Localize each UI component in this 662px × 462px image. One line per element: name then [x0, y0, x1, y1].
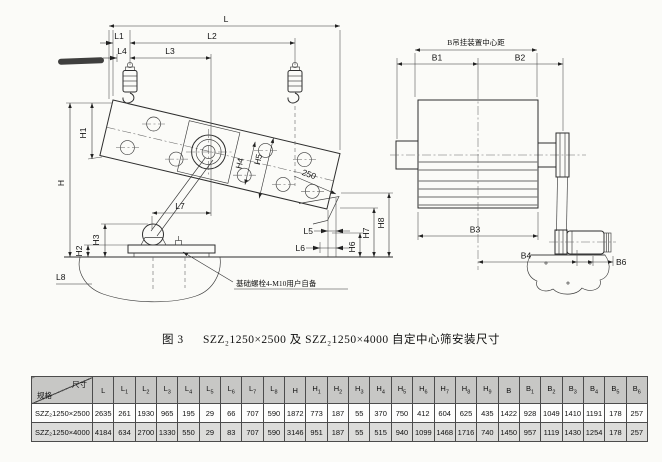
value-cell: 604 [434, 404, 455, 423]
value-cell: 1430 [562, 423, 583, 442]
dim-label-H1: H1 [78, 127, 88, 138]
v-belt [557, 177, 558, 231]
value-cell: 1716 [455, 423, 476, 442]
value-cell: 928 [519, 404, 540, 423]
base-plate [128, 245, 215, 253]
dim-label-L4: L4 [117, 46, 127, 56]
dim-label-L1: L1 [114, 31, 124, 41]
column-header-H2: H2 [327, 377, 348, 404]
column-header-L7: L7 [242, 377, 263, 404]
dim-label-B1: B1 [432, 53, 443, 63]
column-header-L1: L1 [114, 377, 135, 404]
dim-label-H: H [56, 180, 66, 186]
value-cell: 187 [327, 404, 348, 423]
value-cell: 1191 [583, 404, 604, 423]
value-cell: 940 [391, 423, 412, 442]
value-cell: 83 [221, 423, 242, 442]
column-header-H5: H5 [391, 377, 412, 404]
plan-view-dimensions [397, 50, 613, 266]
value-cell: 178 [605, 423, 626, 442]
value-cell: 773 [306, 404, 327, 423]
column-header-H3: H3 [349, 377, 370, 404]
column-header-H6: H6 [413, 377, 434, 404]
column-header-L6: L6 [221, 377, 242, 404]
column-header-B6: B6 [626, 377, 647, 404]
support-roller [143, 224, 164, 245]
value-cell: 550 [178, 423, 199, 442]
center-distance-label: B吊挂装置中心距 [447, 37, 505, 47]
value-cell: 1119 [541, 423, 562, 442]
column-header-H7: H7 [434, 377, 455, 404]
table-head: 尺寸规格LL1L2L3L4L5L6L7L8HH1H2H3H4H5H6H7H8H9… [32, 377, 648, 404]
dim-label-L: L [224, 14, 229, 24]
figure-caption: 图 3 SZZ₂1250×2500 及 SZZ₂1250×4000 自定中心筛安… [0, 331, 662, 347]
value-cell: 4184 [93, 423, 114, 442]
value-cell: 2635 [93, 404, 114, 423]
figure-title: SZZ₂1250×2500 及 SZZ₂1250×4000 自定中心筛安装尺寸 [203, 334, 500, 346]
value-cell: 435 [477, 404, 498, 423]
value-cell: 590 [263, 404, 284, 423]
column-header-B5: B5 [605, 377, 626, 404]
dim-label-L7: L7 [175, 201, 185, 211]
plan-view-labels: B吊挂装置中心距 B1 B2 B3 B4 B6 [432, 37, 627, 267]
plan-view: B吊挂装置中心距 B1 B2 B3 B4 B6 [390, 37, 627, 294]
column-header-L3: L3 [157, 377, 178, 404]
spring-hanger-icon [288, 62, 302, 103]
value-cell: 257 [626, 423, 647, 442]
value-cell: 625 [455, 404, 476, 423]
value-cell: 1254 [583, 423, 604, 442]
value-cell: 1049 [541, 404, 562, 423]
column-header-H: H [285, 377, 306, 404]
value-cell: 951 [306, 423, 327, 442]
value-cell: 178 [605, 404, 626, 423]
value-cell: 412 [413, 404, 434, 423]
value-cell: 257 [626, 404, 647, 423]
scanned-drawing-page: L L1 L2 L4 L3 H H1 H3 H2 L7 L8 250 H4 H5… [0, 0, 662, 462]
dim-label-H3: H3 [91, 234, 101, 245]
motor-body [567, 231, 604, 254]
value-cell: 707 [242, 423, 263, 442]
column-header-B1: B1 [519, 377, 540, 404]
foundation-bolt-note: 基础螺栓4-M10用户自备 [236, 278, 317, 288]
table-row: SZZ₂1250×4000418463427001330550298370759… [32, 423, 648, 442]
side-view: L L1 L2 L4 L3 H H1 H3 H2 L7 L8 250 H4 H5… [56, 14, 393, 302]
column-header-H8: H8 [455, 377, 476, 404]
dim-label-L2: L2 [207, 31, 217, 41]
column-header-B4: B4 [583, 377, 604, 404]
value-cell: 370 [370, 404, 391, 423]
value-cell: 66 [221, 404, 242, 423]
dim-label-H7: H7 [361, 227, 371, 238]
column-header-B2: B2 [541, 377, 562, 404]
dim-label-L8: L8 [56, 272, 66, 282]
column-header-L: L [93, 377, 114, 404]
motor-fins [604, 233, 611, 252]
dim-label-B2: B2 [515, 53, 526, 63]
value-cell: 187 [327, 423, 348, 442]
value-cell: 261 [114, 404, 135, 423]
value-cell: 965 [157, 404, 178, 423]
anchor-bolt [176, 241, 182, 246]
column-header-L8: L8 [263, 377, 284, 404]
value-cell: 1930 [135, 404, 156, 423]
table-row: SZZ₂1250×2500263526119309651952966707590… [32, 404, 648, 423]
value-cell: 195 [178, 404, 199, 423]
value-cell: 3146 [285, 423, 306, 442]
value-cell: 29 [199, 404, 220, 423]
dim-label-B3: B3 [470, 225, 481, 235]
screen-body [100, 100, 340, 224]
value-cell: 750 [391, 404, 412, 423]
value-cell: 515 [370, 423, 391, 442]
dimensions-table: 尺寸规格LL1L2L3L4L5L6L7L8HH1H2H3H4H5H6H7H8H9… [31, 376, 648, 442]
value-cell: 55 [349, 423, 370, 442]
value-cell: 957 [519, 423, 540, 442]
value-cell: 1872 [285, 404, 306, 423]
installation-drawing: L L1 L2 L4 L3 H H1 H3 H2 L7 L8 250 H4 H5… [0, 0, 662, 330]
plan-body [390, 90, 586, 270]
value-cell: 1450 [498, 423, 519, 442]
value-cell: 2700 [135, 423, 156, 442]
dim-label-H4: H4 [233, 157, 245, 170]
value-cell: 1330 [157, 423, 178, 442]
value-cell: 29 [199, 423, 220, 442]
spec-cell: SZZ₂1250×4000 [32, 423, 93, 442]
value-cell: 740 [477, 423, 498, 442]
value-cell: 707 [242, 404, 263, 423]
motor-base [527, 255, 609, 294]
column-header-L2: L2 [135, 377, 156, 404]
column-header-H9: H9 [477, 377, 498, 404]
value-cell: 1468 [434, 423, 455, 442]
figure-number: 图 3 [162, 334, 184, 346]
column-header-B3: B3 [562, 377, 583, 404]
dim-label-H6: H6 [347, 241, 357, 252]
dim-label-B6: B6 [616, 257, 627, 267]
column-header-L5: L5 [199, 377, 220, 404]
foundation-mound [79, 258, 220, 302]
column-header-B: B [498, 377, 519, 404]
dim-label-250: 250 [301, 167, 318, 181]
column-header-L4: L4 [178, 377, 199, 404]
value-cell: 590 [263, 423, 284, 442]
value-cell: 1410 [562, 404, 583, 423]
dim-label-H2: H2 [74, 245, 84, 256]
column-header-H4: H4 [370, 377, 391, 404]
dim-label-L3: L3 [165, 46, 175, 56]
column-header-H1: H1 [306, 377, 327, 404]
value-cell: 55 [349, 404, 370, 423]
dim-label-B4: B4 [521, 251, 532, 261]
spring-hanger-icon [123, 62, 137, 103]
value-cell: 1099 [413, 423, 434, 442]
spec-cell: SZZ₂1250×2500 [32, 404, 93, 423]
dim-label-L6: L6 [296, 243, 306, 253]
value-cell: 634 [114, 423, 135, 442]
table-corner-cell: 尺寸规格 [32, 377, 93, 404]
value-cell: 1422 [498, 404, 519, 423]
table-body: SZZ₂1250×2500263526119309651952966707590… [32, 404, 648, 442]
dim-label-L5: L5 [304, 226, 314, 236]
dim-label-H8: H8 [376, 217, 386, 228]
